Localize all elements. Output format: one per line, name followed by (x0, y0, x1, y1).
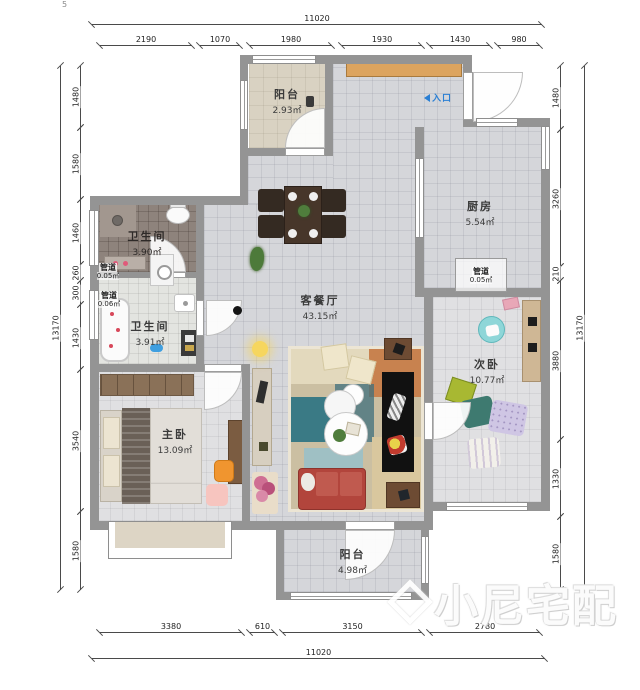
ottoman-pink (206, 484, 228, 506)
dim-left-seg: 1430 (80, 305, 81, 370)
dim-top-seg: 1930 (342, 45, 422, 46)
window (252, 55, 316, 64)
flower-stand (252, 472, 278, 514)
dim-top-seg: 1070 (200, 45, 240, 46)
dim-left-seg: 1580 (80, 512, 81, 590)
entrance-arrow-icon (424, 94, 430, 102)
wall (276, 530, 284, 600)
dining-chair (320, 189, 346, 212)
dining-chair (258, 189, 284, 212)
dim-top-seg: 1980 (250, 45, 332, 46)
wall (424, 297, 433, 402)
table-plant (333, 429, 346, 442)
plate (309, 192, 318, 201)
second-door-leaf (424, 402, 433, 440)
dim-left-seg: 300 (80, 281, 81, 305)
window (240, 80, 248, 130)
desk-monitor (528, 317, 537, 326)
flowers (256, 490, 268, 502)
washing-machine (150, 254, 174, 286)
bay-window-sill (115, 522, 225, 548)
plate (309, 229, 318, 238)
desk-chair-orange (214, 460, 234, 482)
bed-pillow (103, 455, 120, 487)
dim-right-seg: 1580 (560, 517, 561, 590)
dim-top-seg: 1430 (430, 45, 490, 46)
floor-lamp (252, 341, 268, 357)
wall (424, 440, 433, 511)
plate (288, 229, 297, 238)
console-item (256, 380, 268, 403)
washer-door (157, 265, 172, 280)
wall (395, 521, 433, 530)
window (476, 118, 518, 127)
dim-top-seg: 2190 (100, 45, 192, 46)
dining-chair (320, 215, 346, 238)
wall (242, 364, 250, 529)
bath-lower-door-leaf (196, 300, 204, 336)
window (421, 536, 429, 584)
dim-bottom-seg: 3150 (283, 632, 422, 633)
sink (174, 294, 195, 312)
sofa (298, 468, 366, 510)
wall (325, 148, 333, 156)
kitchen-sliding-door (415, 158, 424, 238)
side-table (384, 338, 412, 360)
window (541, 126, 550, 170)
wall (240, 148, 285, 156)
duct-left-upper: 管道0.05㎡ (92, 258, 124, 284)
floor-cushion (320, 343, 349, 370)
console-item (259, 442, 268, 451)
wardrobe (100, 374, 194, 396)
vanity-item (185, 335, 194, 342)
sofa-cushion (316, 472, 338, 496)
shower-area (100, 205, 136, 237)
dim-bottom-seg: 3380 (100, 632, 242, 633)
side-table-item (393, 343, 406, 356)
dim-left-total: 13170 (60, 66, 61, 590)
bay-window (108, 521, 232, 559)
balcony-top-door-leaf (285, 148, 325, 156)
bean-chair (478, 316, 505, 343)
dim-left-seg: 1580 (80, 128, 81, 200)
duct-kitchen: 管道0.05㎡ (455, 258, 507, 292)
tv-decor (386, 393, 406, 422)
dim-right-seg: 3880 (560, 281, 561, 440)
pillow (467, 437, 501, 470)
dim-right-total: 13170 (584, 66, 585, 590)
dining-chair (258, 215, 284, 238)
plate (288, 192, 297, 201)
bath-mat (150, 344, 163, 352)
watermark-text: 小尼宅配 (434, 570, 618, 634)
table-plant (298, 205, 310, 217)
balcony-bottom-door-leaf (345, 521, 395, 530)
desk-monitor (528, 343, 537, 352)
shower-drain (112, 215, 123, 226)
petal (116, 328, 120, 332)
bean-chair-pillow (485, 324, 500, 337)
tv-cabinet (382, 372, 414, 472)
sofa-blanket (301, 473, 315, 491)
duct-left-lower: 管道0.06㎡ (92, 286, 126, 312)
dim-right-seg: 3260 (560, 130, 561, 267)
column-marker (233, 306, 242, 315)
wall (196, 204, 204, 300)
entrance-marker: 入口 (424, 91, 452, 104)
bed-mattress (150, 408, 202, 504)
dim-top-total: 11020 (92, 24, 542, 25)
dim-right-seg: 1330 (560, 440, 561, 517)
window (446, 502, 528, 511)
desk (522, 300, 541, 382)
wall (90, 196, 248, 205)
bed-pillow (103, 417, 120, 449)
dim-bottom-total: 11020 (92, 658, 545, 659)
coffee-table-large (324, 412, 368, 456)
sofa-cushion (340, 472, 362, 496)
wall (463, 55, 472, 73)
dining-table (284, 186, 322, 244)
wall (186, 272, 204, 278)
vanity-item (185, 345, 194, 351)
petal (110, 312, 114, 316)
dim-left-seg: 1460 (80, 200, 81, 265)
dim-top-seg: 980 (498, 45, 540, 46)
dim-left-seg: 1480 (80, 66, 81, 128)
toilet (166, 206, 190, 224)
side-table-item (398, 489, 410, 501)
wall (250, 521, 345, 530)
console-table (252, 368, 272, 466)
pillow (487, 399, 528, 437)
floorplan-canvas: 5 11020 2190 1070 1980 1930 1430 980 338… (0, 0, 640, 690)
entry-door-arc (473, 72, 523, 122)
wall (541, 118, 550, 511)
entrance-label: 入口 (432, 91, 452, 104)
dim-left-seg: 3540 (80, 370, 81, 512)
side-table (386, 482, 420, 508)
dim-right-seg: 1480 (560, 66, 561, 130)
wall (90, 364, 204, 372)
dim-bottom-seg: 610 (250, 632, 275, 633)
wall (325, 55, 333, 148)
faucet (183, 301, 188, 306)
window (290, 592, 412, 600)
master-door-leaf (204, 364, 242, 372)
page-artifact: 5 (62, 0, 67, 9)
wall-hook (306, 96, 314, 107)
shoe-cabinet (346, 63, 462, 77)
dim-bottom-seg: 2780 (430, 632, 540, 633)
petal (109, 344, 113, 348)
bed-pillow-zone (100, 410, 122, 502)
tv-decor (386, 434, 408, 456)
bed-blanket (122, 408, 150, 504)
entry-door-leaf (463, 72, 473, 120)
table-tray (345, 422, 361, 437)
